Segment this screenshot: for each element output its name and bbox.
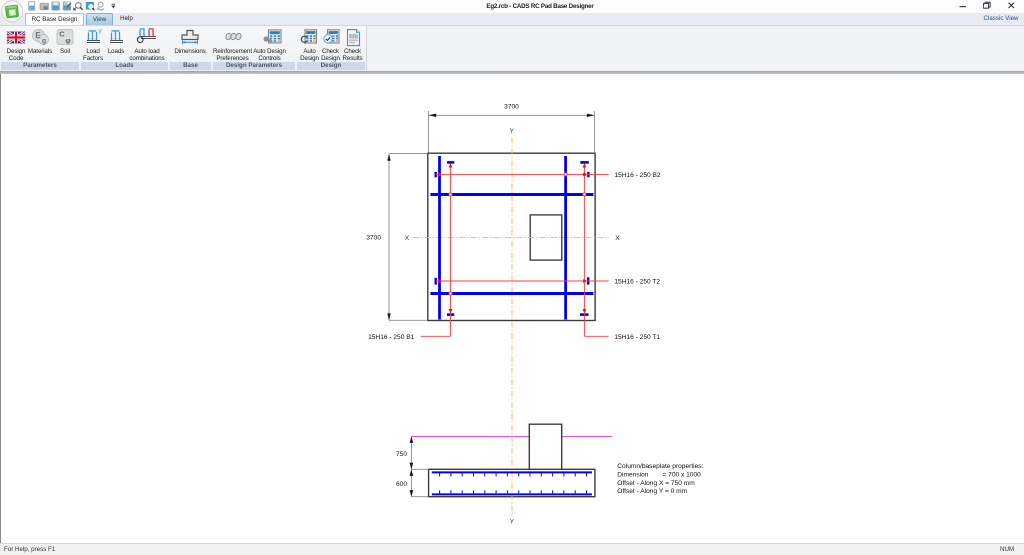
svg-text:15H16 - 250 B1: 15H16 - 250 B1 [368, 334, 415, 341]
svg-text:Offset - Along X = 750 mm: Offset - Along X = 750 mm [617, 480, 695, 487]
svg-text:Y: Y [509, 128, 514, 135]
svg-text:Y: Y [510, 519, 515, 526]
svg-text:X: X [405, 235, 410, 242]
svg-text:g: g [42, 38, 46, 45]
svg-text:750: 750 [396, 451, 407, 458]
svg-text:Offset - Along Y = 0 mm: Offset - Along Y = 0 mm [617, 488, 687, 495]
svg-text:φ: φ [65, 36, 71, 45]
svg-text:15H16 - 250 B2: 15H16 - 250 B2 [614, 172, 661, 179]
svg-text:3700: 3700 [504, 104, 519, 111]
svg-text:600: 600 [396, 481, 407, 488]
svg-text:15H16 - 250 T2: 15H16 - 250 T2 [614, 279, 660, 286]
svg-text:= 700 x 1000: = 700 x 1000 [663, 472, 702, 479]
svg-text:3700: 3700 [366, 234, 381, 241]
svg-text:E: E [35, 31, 41, 40]
svg-text:γ: γ [99, 28, 103, 35]
svg-text:Column/baseplate properties:: Column/baseplate properties: [617, 463, 703, 470]
svg-text:15H16 - 250 T1: 15H16 - 250 T1 [614, 334, 660, 341]
svg-text:Dimension: Dimension [617, 472, 648, 479]
svg-text:X: X [615, 235, 620, 242]
